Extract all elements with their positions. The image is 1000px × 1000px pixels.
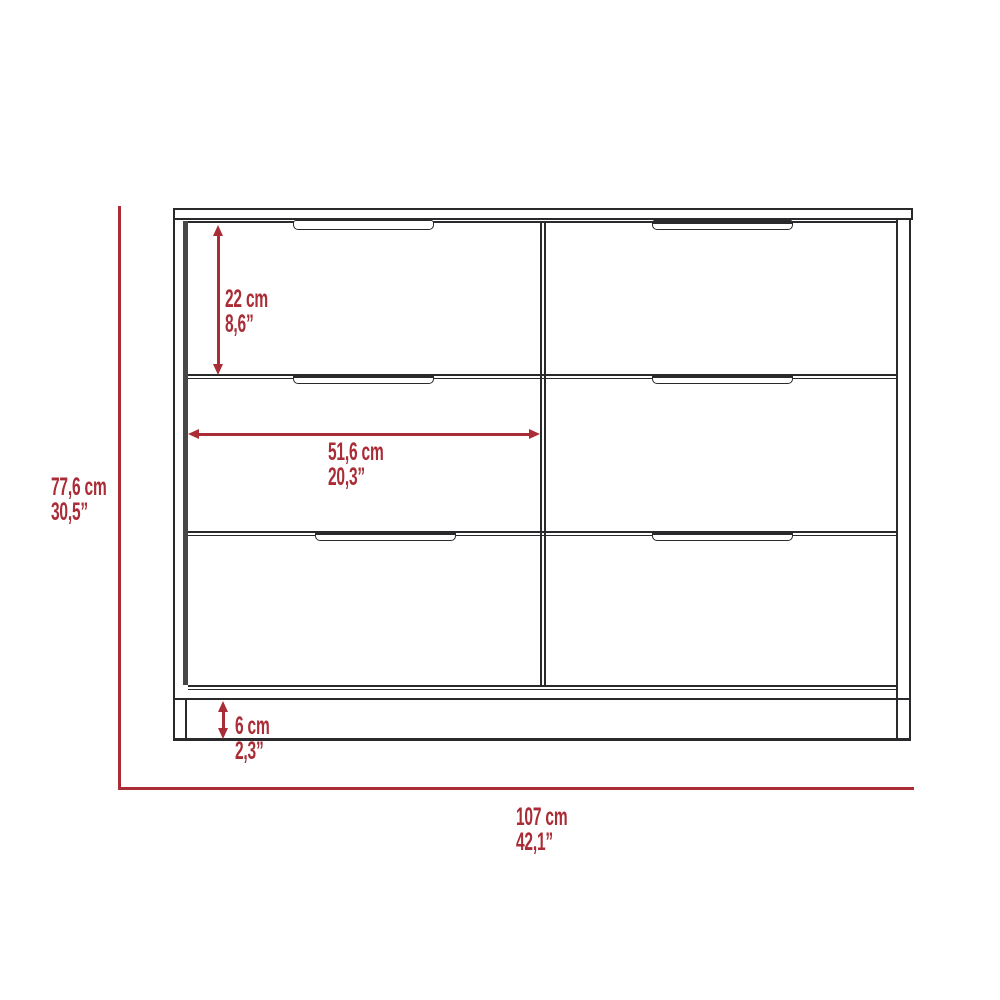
dresser-right-inner-line [896,220,898,738]
arrow-head-down [213,364,223,375]
drawer-handle [652,220,793,230]
overall-width-cm: 107 cm [516,805,567,830]
overall-height-dimension-line [118,206,121,790]
drawer-handle [293,220,434,230]
arrow-head-right [529,429,540,439]
dresser-left-shade [183,221,188,685]
drawer-width-cm: 51,6 cm [328,440,384,465]
base-height-inches: 2,3” [235,739,270,764]
handle-recess-bar [293,374,434,378]
drawer-handle [293,374,434,384]
overall-width-label: 107 cm 42,1” [516,805,567,855]
overall-height-label: 77,6 cm 30,5” [51,475,107,525]
center-divider-line [544,221,546,686]
handle-recess-bar [652,531,793,535]
dimension-diagram: 77,6 cm 30,5” 107 cm 42,1” 22 cm 8,6” 51… [0,0,1000,1000]
overall-width-inches: 42,1” [516,830,567,855]
center-divider-line [540,221,542,686]
drawer-handle [652,531,793,541]
base-top-line [175,698,909,700]
dresser-bottom-line [173,738,911,741]
drawer-bottom-line [188,685,896,687]
base-height-label: 6 cm 2,3” [235,714,270,764]
drawer-height-arrow [212,225,224,375]
base-left-line [185,700,187,738]
drawer-width-inches: 20,3” [328,465,384,490]
drawer-width-label: 51,6 cm 20,3” [328,440,384,490]
base-right-line [896,700,898,738]
drawer-height-inches: 8,6” [225,312,268,337]
dresser-left-side-line [173,220,175,740]
dresser-right-side-line [909,220,911,740]
base-height-cm: 6 cm [235,714,270,739]
drawer-bottom-line [188,689,896,690]
handle-recess-bar [652,374,793,378]
base-height-arrow [217,701,229,739]
dresser-top-panel [173,208,913,220]
arrow-head-down [218,728,228,739]
arrow-shaft [222,710,225,730]
drawer-height-cm: 22 cm [225,287,268,312]
handle-recess-bar [315,531,456,535]
arrow-shaft [217,234,220,366]
overall-height-inches: 30,5” [51,500,107,525]
drawer-height-label: 22 cm 8,6” [225,287,268,337]
arrow-shaft [197,433,531,436]
overall-height-cm: 77,6 cm [51,475,107,500]
drawer-handle [315,531,456,541]
drawer-handle [652,374,793,384]
handle-recess-bar [652,220,793,224]
overall-width-dimension-line [118,787,914,790]
